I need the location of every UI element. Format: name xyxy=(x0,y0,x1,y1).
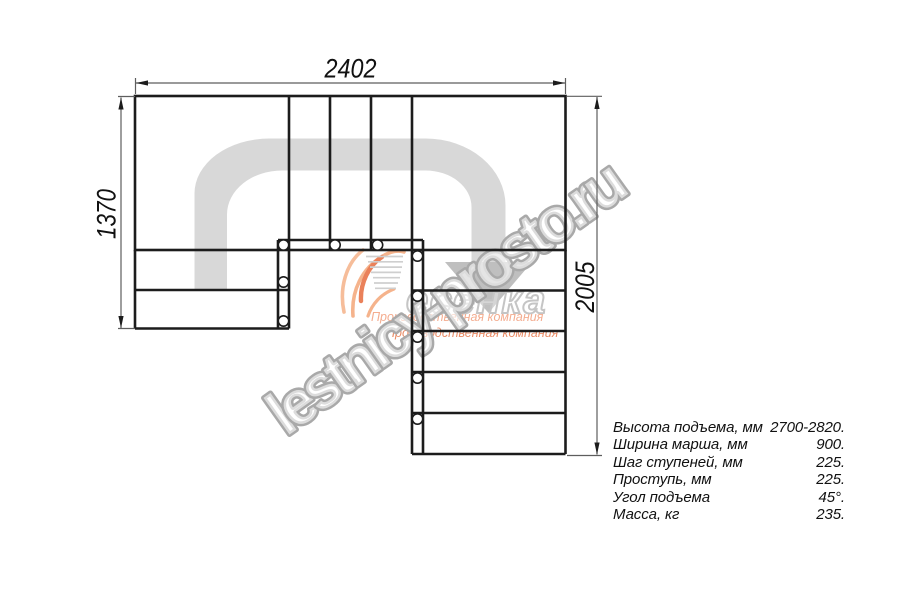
svg-text:2005: 2005 xyxy=(570,261,600,313)
svg-text:1370: 1370 xyxy=(92,189,122,239)
svg-text:2402: 2402 xyxy=(324,54,377,84)
